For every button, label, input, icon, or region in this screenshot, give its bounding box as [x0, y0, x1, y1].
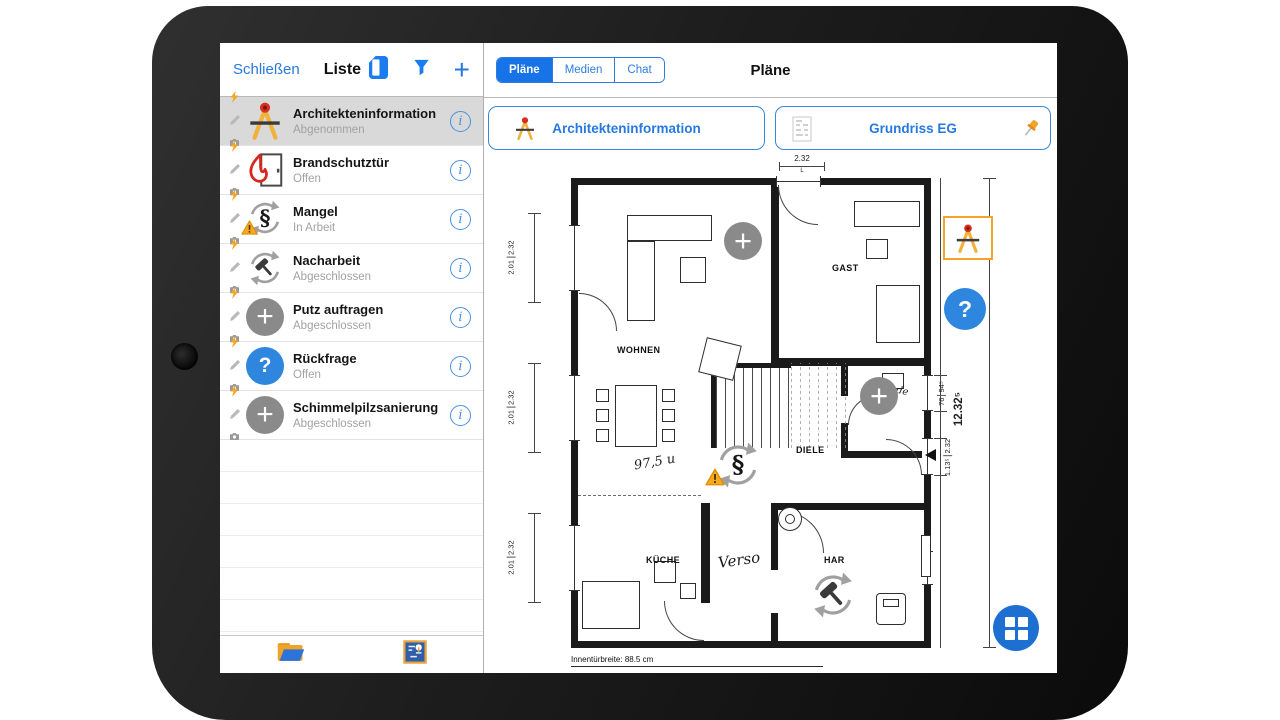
item-status: Offen	[293, 173, 450, 185]
item-title: Nacharbeit	[293, 253, 450, 268]
plus-marker[interactable]: +	[724, 222, 762, 260]
window	[569, 525, 580, 591]
dimension-label: 1.13⁵2.32	[943, 437, 952, 478]
list-item[interactable]: + Putz auftragen Abgeschlossen i	[220, 293, 483, 342]
item-status: Abgeschlossen	[293, 320, 450, 332]
item-status: Offen	[293, 369, 450, 381]
list-title: Liste	[324, 61, 361, 79]
paragraph-warning-icon: §	[243, 196, 287, 242]
plans-header: Pläne Medien Chat Pläne	[484, 43, 1057, 98]
plan-button-architekteninformation[interactable]: Architekteninformation	[488, 106, 765, 150]
pencil-icon	[230, 112, 240, 130]
furniture-table	[680, 257, 706, 283]
room-label-wohnen: WOHNEN	[617, 345, 660, 355]
empty-row	[220, 504, 483, 536]
pencil-icon	[230, 357, 240, 375]
compass-icon	[953, 222, 983, 255]
furniture-chair	[596, 409, 609, 422]
item-status: In Arbeit	[293, 222, 450, 234]
list-item[interactable]: ? Rückfrage Offen i	[220, 342, 483, 391]
furniture-chair	[662, 409, 675, 422]
furniture-chair	[662, 429, 675, 442]
furniture-dining-table	[615, 385, 657, 447]
compass-marker-selected[interactable]	[943, 216, 993, 260]
fire-door-icon	[243, 147, 287, 193]
list-item[interactable]: § Mangel In Arbeit i	[220, 195, 483, 244]
hammer-cycle-marker[interactable]	[807, 569, 859, 621]
window	[569, 225, 580, 291]
row-mini-icons	[226, 384, 243, 446]
list-item[interactable]: + Schimmelpilzsanierung Abgeschlossen i	[220, 391, 483, 440]
list-item[interactable]: Architekteninformation Abgenommen i	[220, 97, 483, 146]
flash-icon	[230, 139, 239, 157]
empty-row	[220, 600, 483, 632]
tablet-camera	[171, 343, 198, 370]
hammer-cycle-icon	[243, 245, 287, 291]
wall	[771, 510, 778, 570]
empty-row	[220, 440, 483, 472]
info-icon[interactable]: i	[450, 307, 471, 328]
plan-map-icon[interactable]	[403, 640, 427, 669]
paragraph-warning-marker[interactable]: §	[712, 439, 764, 491]
furniture-table	[866, 239, 888, 259]
filter-icon[interactable]	[412, 58, 431, 82]
camera-icon	[229, 428, 240, 446]
dimension-line	[779, 166, 824, 167]
furniture-kitchen-counter	[582, 581, 640, 629]
report-icon[interactable]	[368, 55, 389, 85]
item-title: Brandschutztür	[293, 155, 450, 170]
furniture-chair	[662, 389, 675, 402]
empty-row	[220, 568, 483, 600]
info-icon[interactable]: i	[450, 405, 471, 426]
page-title: Pläne	[484, 62, 1057, 79]
plan-thumbnail-icon	[792, 116, 812, 147]
plan-button-grundriss-eg[interactable]: Grundriss EG	[775, 106, 1051, 150]
dimension-label: 2.012.32	[507, 388, 516, 426]
room-label-har: HAR	[824, 555, 845, 565]
list-item[interactable]: Brandschutztür Offen i	[220, 146, 483, 195]
direction-arrow	[925, 449, 936, 461]
dimension-total-label: 12.32⁵	[953, 392, 965, 426]
plans-panel: Pläne Medien Chat Pläne Architekteninfor…	[484, 43, 1057, 673]
plan-footnote: Innentürbreite: 88.5 cm	[571, 655, 823, 667]
floor-plan-canvas[interactable]: WOHNEN GAST DIELE KÜCHE HAR 97,5 u Verso…	[484, 153, 1057, 673]
tablet-frame: Schließen Liste + Arc	[152, 6, 1128, 720]
staircase-dotted	[791, 363, 846, 448]
item-title: Schimmelpilzsanierung	[293, 400, 450, 415]
list-footer-toolbar	[220, 635, 483, 673]
item-title: Mangel	[293, 204, 450, 219]
item-status: Abgeschlossen	[293, 418, 450, 430]
warning-triangle-icon	[705, 468, 725, 491]
warning-triangle-icon	[241, 220, 258, 240]
dimension-label: 2.012.32	[507, 538, 516, 576]
info-icon[interactable]: i	[450, 111, 471, 132]
question-circle-icon: ?	[243, 343, 287, 389]
dashed-partition	[578, 495, 701, 496]
pencil-icon	[230, 406, 240, 424]
add-icon[interactable]: +	[454, 59, 470, 81]
dimension-label: 7694⁵	[937, 379, 946, 408]
info-icon[interactable]: i	[450, 209, 471, 230]
room-label-gast: GAST	[832, 263, 859, 273]
dimension-line	[534, 363, 535, 453]
pencil-icon	[230, 210, 240, 228]
dimension-line	[534, 513, 535, 603]
question-marker[interactable]: ?	[944, 288, 986, 330]
list-header-icons: +	[368, 55, 470, 85]
plus-marker[interactable]: +	[860, 377, 898, 415]
dimension-line	[940, 178, 941, 648]
flash-icon	[230, 188, 239, 206]
furniture-sofa	[627, 215, 712, 241]
info-icon[interactable]: i	[450, 258, 471, 279]
plan-button-label: Architekteninformation	[552, 121, 701, 136]
flash-icon	[230, 384, 239, 402]
plan-button-label: Grundriss EG	[869, 121, 957, 136]
dimension-label: 2.32	[784, 154, 820, 163]
wall	[771, 613, 778, 645]
item-title: Architekteninformation	[293, 106, 450, 121]
list-header: Schließen Liste +	[220, 43, 483, 97]
room-label-kueche: KÜCHE	[646, 555, 680, 565]
window	[922, 375, 933, 411]
plus-circle-icon: +	[243, 294, 287, 340]
furniture-sofa	[627, 241, 655, 321]
pin-icon	[1022, 119, 1040, 144]
appliance-washer-detail	[883, 599, 899, 607]
pencil-icon	[230, 161, 240, 179]
fixture-boiler-inner	[785, 514, 795, 524]
app-screen: Schließen Liste + Arc	[220, 43, 1057, 673]
furniture-bed	[854, 201, 920, 227]
list-panel: Schließen Liste + Arc	[220, 43, 484, 673]
furniture-couch	[876, 285, 920, 343]
appliance-washer	[876, 593, 906, 625]
room-label-diele: DIELE	[796, 445, 825, 455]
grid-overview-button[interactable]	[993, 605, 1039, 651]
compass-icon	[513, 115, 537, 147]
item-title: Putz auftragen	[293, 302, 450, 317]
item-status: Abgeschlossen	[293, 271, 450, 283]
dimension-label: L	[784, 168, 820, 174]
flash-icon	[230, 335, 239, 353]
compass-icon	[243, 98, 287, 144]
wall	[701, 503, 710, 603]
wall	[771, 185, 779, 365]
empty-row	[220, 472, 483, 504]
fixture-radiator	[921, 535, 931, 577]
info-icon[interactable]: i	[450, 356, 471, 377]
info-icon[interactable]: i	[450, 160, 471, 181]
folder-icon[interactable]	[276, 640, 306, 669]
dimension-line	[534, 213, 535, 303]
close-button[interactable]: Schließen	[233, 61, 300, 78]
pencil-icon	[230, 259, 240, 277]
flash-icon	[230, 237, 239, 255]
flash-icon	[230, 286, 239, 304]
furniture-stool	[680, 583, 696, 599]
item-status: Abgenommen	[293, 124, 450, 136]
furniture-chair	[596, 429, 609, 442]
pencil-icon	[230, 308, 240, 326]
list-item[interactable]: Nacharbeit Abgeschlossen i	[220, 244, 483, 293]
empty-row	[220, 536, 483, 568]
plus-circle-icon: +	[243, 392, 287, 438]
item-title: Rückfrage	[293, 351, 450, 366]
furniture-chair	[596, 389, 609, 402]
dimension-label: 2.012.32	[507, 238, 516, 276]
window	[569, 375, 580, 441]
flash-icon	[230, 90, 239, 108]
